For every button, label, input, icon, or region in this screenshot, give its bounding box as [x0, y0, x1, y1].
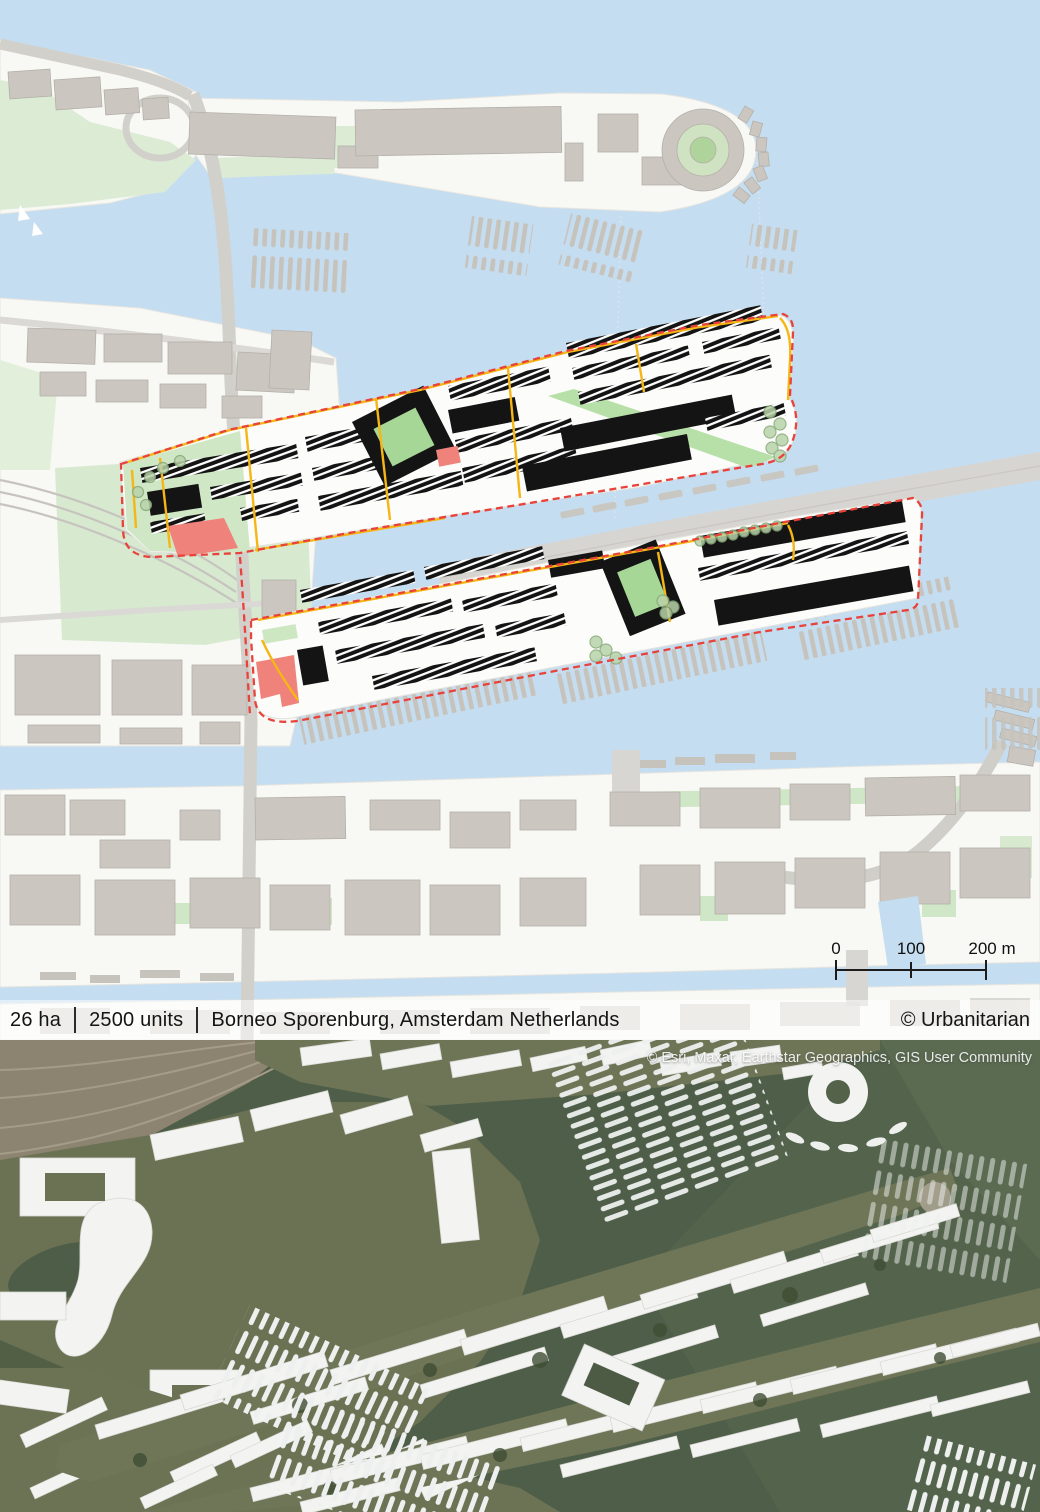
caption-stats: 26 ha 2500 units Borneo Sporenburg, Amst… [10, 1007, 620, 1033]
site-plan-map: 0 100 200 m 26 ha 2500 units Borneo Spor… [0, 0, 1040, 1040]
caption-divider [74, 1007, 76, 1033]
caption-area: 26 ha [10, 1009, 61, 1032]
scale-label-200: 200 m [968, 939, 1015, 958]
caption-divider [196, 1007, 198, 1033]
scale-label-0: 0 [831, 939, 840, 958]
imagery-attribution: © Esri, Maxar, Earthstar Geographics, GI… [647, 1050, 1032, 1066]
aerial-photo: © Esri, Maxar, Earthstar Geographics, GI… [0, 1040, 1040, 1512]
caption-location: Borneo Sporenburg, Amsterdam Netherlands [211, 1009, 619, 1032]
caption-units: 2500 units [89, 1009, 183, 1032]
scale-label-100: 100 [897, 939, 925, 958]
caption-bar: 26 ha 2500 units Borneo Sporenburg, Amst… [0, 1000, 1040, 1040]
caption-credit: © Urbanitarian [901, 1009, 1030, 1032]
aerial-scene [0, 1040, 1040, 1512]
site-plan-svg: 0 100 200 m [0, 0, 1040, 1040]
